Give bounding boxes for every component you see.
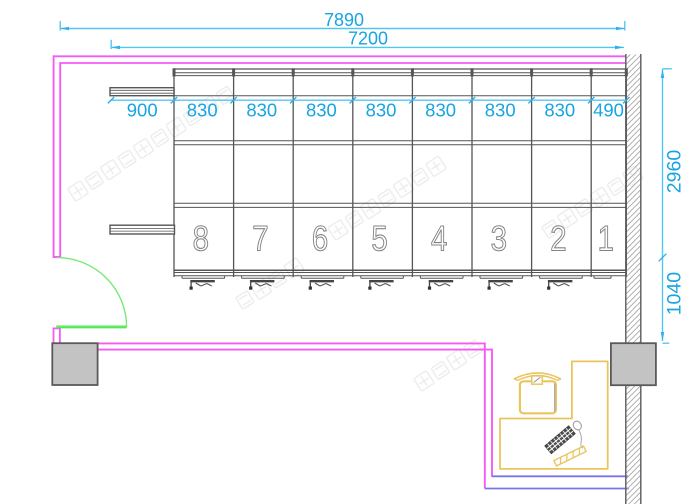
- svg-text:830: 830: [187, 100, 218, 121]
- svg-text:3: 3: [491, 219, 507, 258]
- svg-text:830: 830: [246, 100, 277, 121]
- svg-text:1: 1: [598, 219, 614, 258]
- svg-text:490: 490: [593, 100, 624, 121]
- svg-text:830: 830: [306, 100, 337, 121]
- svg-text:2960: 2960: [664, 150, 686, 194]
- svg-text:830: 830: [366, 100, 397, 121]
- svg-text:6: 6: [312, 219, 328, 258]
- svg-text:7: 7: [252, 219, 268, 258]
- svg-text:4: 4: [431, 219, 447, 258]
- svg-text:8: 8: [193, 219, 209, 258]
- svg-text:830: 830: [544, 100, 575, 121]
- svg-text:7200: 7200: [348, 29, 388, 49]
- svg-text:7890: 7890: [324, 10, 364, 30]
- svg-text:1040: 1040: [664, 272, 686, 316]
- svg-text:900: 900: [127, 100, 158, 121]
- svg-text:5: 5: [371, 219, 387, 258]
- svg-text:830: 830: [485, 100, 516, 121]
- svg-text:2: 2: [550, 219, 566, 258]
- svg-text:830: 830: [425, 100, 456, 121]
